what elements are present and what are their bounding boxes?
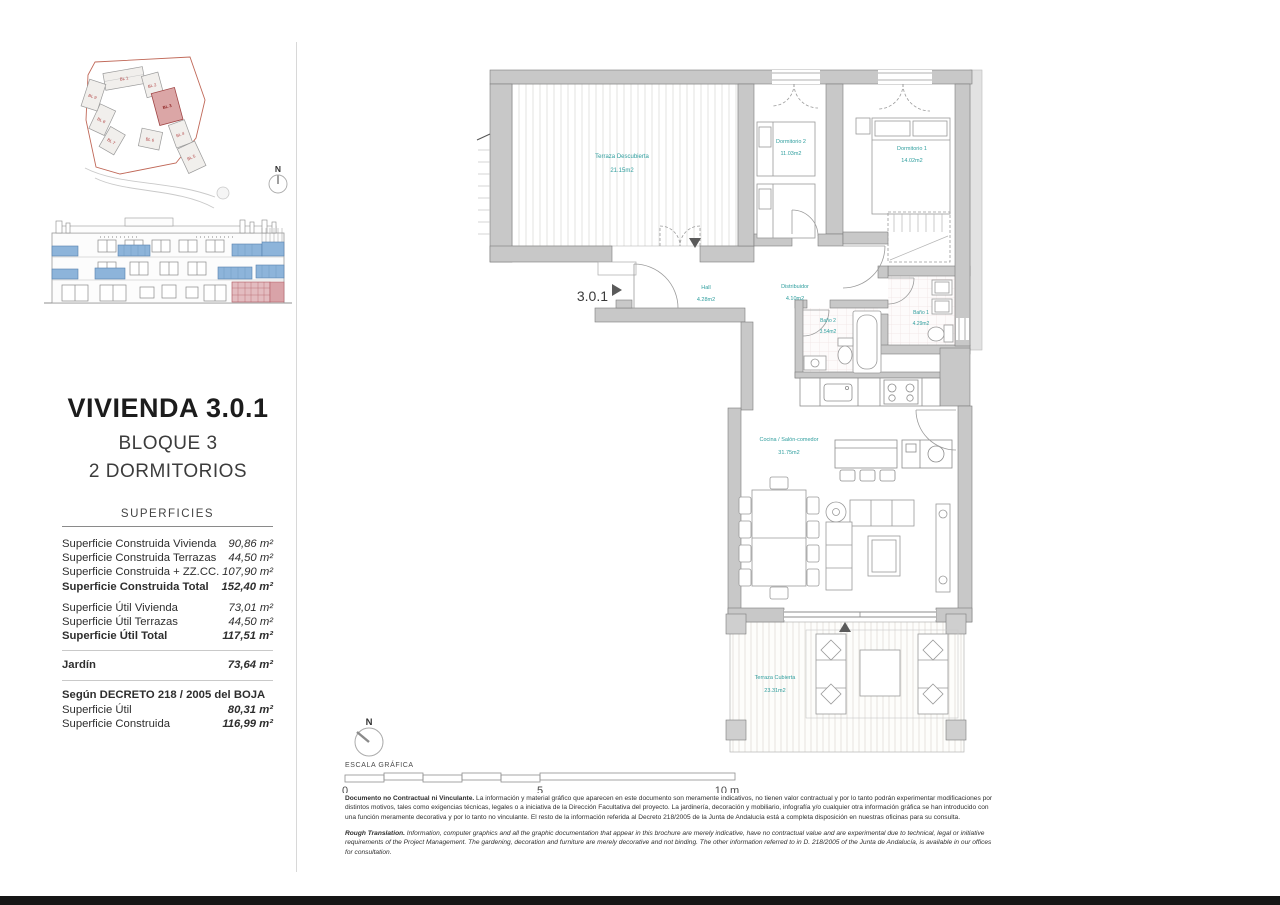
disclaimer-es: Documento no Contractual ni Vinculante. …	[345, 794, 995, 822]
room-name: Terraza Descubierta	[595, 154, 649, 160]
title-block: VIVIENDA 3.0.1 BLOQUE 3 2 DORMITORIOS	[40, 393, 296, 483]
room-area: 11.03m2	[781, 151, 802, 157]
svg-text:N: N	[275, 164, 281, 174]
kitchen-counter	[800, 378, 940, 406]
scale-caption: ESCALA GRÁFICA	[345, 760, 414, 769]
room-name: Dormitorio 2	[776, 139, 806, 145]
room-name: Baño 1	[913, 310, 929, 316]
terrace-open-floor	[512, 84, 738, 246]
room-area: 31.75m2	[778, 450, 799, 456]
table-row: Superficie Construida + ZZ.CC.107,90 m²	[62, 565, 273, 579]
dining-set	[739, 477, 819, 599]
decreto-heading: Según DECRETO 218 / 2005 del BOJA	[62, 688, 273, 703]
unit-entry-arrow	[612, 284, 622, 296]
elevation-highlighted-unit	[232, 282, 284, 302]
site-plan: BL 1 BL 2 BL 3 BL 4 BL 5 BL 6 BL 7 BL 8 …	[55, 30, 305, 210]
building-elevation	[40, 213, 295, 310]
svg-text:10 m: 10 m	[715, 785, 739, 793]
room-area: 4.28m2	[697, 297, 715, 303]
table-row: Superficie Útil80,31 m²	[62, 703, 273, 717]
disclaimer-en-lead: Rough Translation.	[345, 830, 405, 837]
table-row-jardin: Jardín73,64 m²	[62, 658, 273, 672]
room-area: 3.54m2	[820, 329, 837, 335]
room-name: Baño 2	[820, 318, 836, 324]
floor-plan: 3.0.1 Terraza Descubierta 21.15m2 Dormit…	[340, 50, 1030, 793]
superficies-table: SUPERFICIES Superficie Construida Vivien…	[62, 508, 273, 731]
table-row: Superficie Construida Terrazas44,50 m²	[62, 551, 273, 565]
kitchen-island	[835, 440, 952, 481]
room-area: 4.10m2	[786, 296, 804, 302]
room-name: Dormitorio 1	[897, 146, 927, 152]
svg-text:N: N	[366, 717, 373, 728]
room-name: Distribuidor	[781, 284, 809, 290]
table-row: Superficie Útil Terrazas44,50 m²	[62, 615, 273, 629]
brochure-page: BL 1 BL 2 BL 3 BL 4 BL 5 BL 6 BL 7 BL 8 …	[0, 0, 1280, 905]
table-row-total: Superficie Construida Total152,40 m²	[62, 580, 273, 594]
unit-title: VIVIENDA 3.0.1	[40, 393, 296, 424]
table-row: Superficie Construida116,99 m²	[62, 717, 273, 731]
legal-disclaimer: Documento no Contractual ni Vinculante. …	[345, 794, 995, 864]
room-area: 23.31m2	[764, 688, 785, 694]
north-compass-icon: N	[269, 164, 287, 193]
table-row: Superficie Construida Vivienda90,86 m²	[62, 537, 273, 551]
room-area: 21.15m2	[610, 168, 634, 174]
disclaimer-en: Rough Translation. Information, computer…	[345, 829, 995, 857]
garden-steps	[477, 134, 490, 234]
bedrooms-subtitle: 2 DORMITORIOS	[40, 461, 296, 483]
table-rule	[62, 680, 273, 681]
wardrobe	[888, 212, 950, 262]
room-name: Hall	[701, 285, 710, 291]
bath1-fixtures	[928, 280, 953, 342]
site-buildings: BL 1 BL 2 BL 3 BL 4 BL 5 BL 6 BL 7 BL 8 …	[81, 67, 206, 174]
room-name: Cocina / Salón-comedor	[759, 437, 818, 443]
svg-text:0: 0	[342, 785, 348, 793]
scale-bar	[345, 773, 735, 782]
scale-labels: 0 5 10 m	[342, 785, 739, 793]
page-bottom-edge	[0, 896, 1280, 905]
disclaimer-es-lead: Documento no Contractual ni Vinculante.	[345, 795, 474, 802]
unit-number-label: 3.0.1	[577, 288, 608, 304]
table-row: Superficie Útil Vivienda73,01 m²	[62, 601, 273, 615]
room-area: 14.02m2	[901, 158, 922, 164]
room-name: Terraza Cubierta	[755, 675, 797, 681]
entry-step	[598, 262, 636, 275]
room-area: 4.29m2	[913, 321, 930, 327]
table-rule	[62, 526, 273, 527]
living-furniture	[826, 500, 950, 592]
table-row-total: Superficie Útil Total117,51 m²	[62, 629, 273, 643]
north-compass-icon: N	[355, 717, 383, 756]
table-rule	[62, 650, 273, 651]
svg-text:5: 5	[537, 785, 543, 793]
superficies-heading: SUPERFICIES	[62, 508, 273, 520]
spacer	[62, 594, 273, 601]
block-subtitle: BLOQUE 3	[40, 433, 296, 455]
